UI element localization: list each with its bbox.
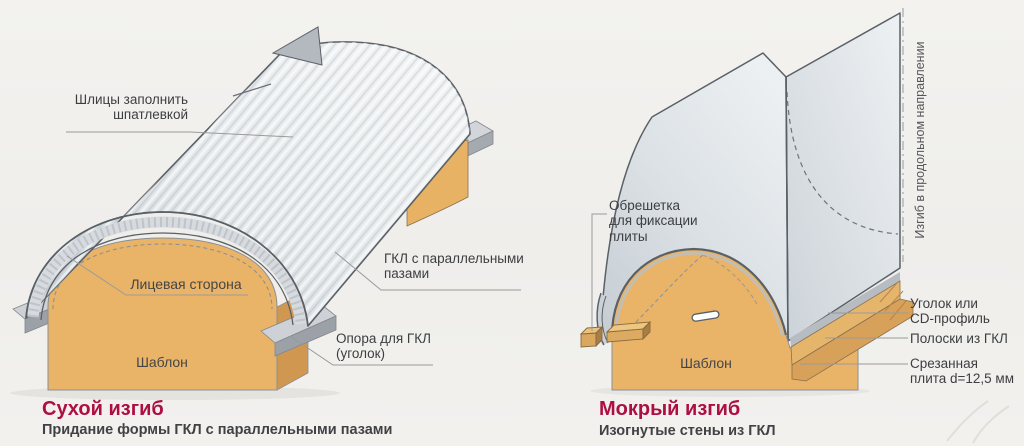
label-gkl-strips: Полоски из ГКЛ	[910, 331, 1024, 346]
label-corner-profile: Уголок или CD-профиль	[910, 296, 1022, 327]
faint-watermark	[947, 401, 1009, 443]
label-support: Опора для ГКЛ (уголок)	[336, 331, 456, 362]
dry-bend-title: Сухой изгиб	[42, 398, 164, 421]
label-template-wet: Шаблон	[664, 356, 748, 372]
label-lathing: Обрешетка для фиксации плиты	[609, 198, 721, 244]
label-gkl: ГКЛ с параллельными пазами	[384, 251, 534, 282]
label-face-side: Лицевая сторона	[122, 277, 250, 293]
drywall-bending-illustration	[0, 0, 1024, 446]
label-template-dry: Шаблон	[120, 355, 204, 371]
label-longitudinal-bend: Изгиб в продольном направлении	[913, 40, 927, 240]
wet-bend-title: Мокрый изгиб	[599, 398, 740, 421]
wet-bend-subtitle: Изогнутые стены из ГКЛ	[599, 423, 776, 439]
label-cut-plate: Срезанная плита d=12,5 мм	[910, 356, 1024, 387]
label-slits: Шлицы заполнить шпатлевкой	[48, 92, 188, 123]
dry-bend-subtitle: Придание формы ГКЛ с параллельными пазам…	[42, 422, 392, 438]
diagram-canvas: Шлицы заполнить шпатлевкой Лицевая сторо…	[0, 0, 1024, 446]
